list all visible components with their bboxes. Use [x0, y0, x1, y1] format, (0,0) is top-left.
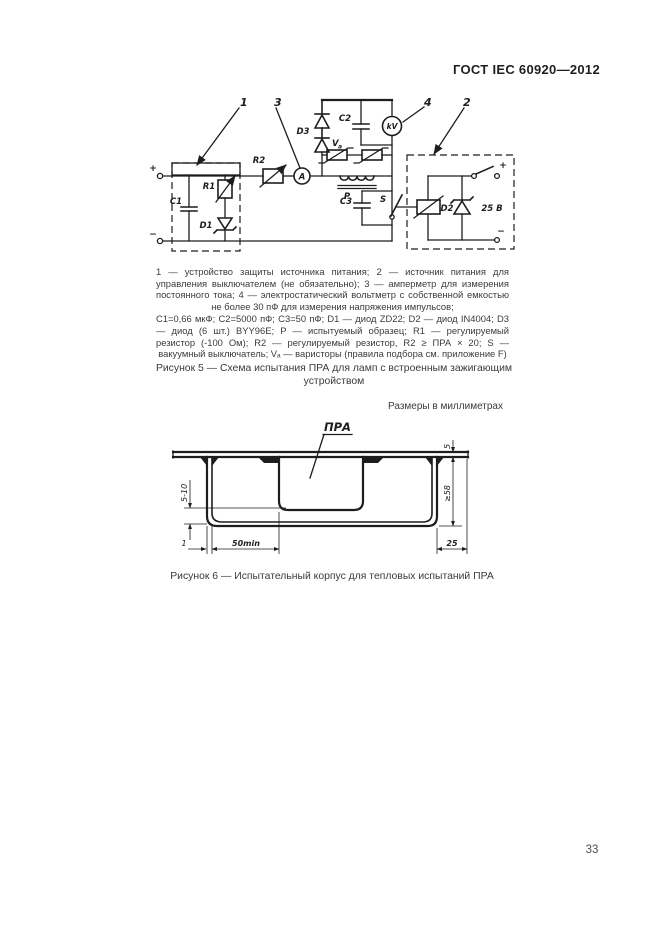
ballast-tab-right [363, 457, 384, 463]
callout-3: 3 [274, 96, 282, 109]
label-r2: R2 [253, 156, 266, 166]
callout-1-arrow [197, 108, 239, 165]
contact-blade [476, 167, 493, 175]
callout-3-line [276, 108, 300, 168]
tub-outer-wall [207, 457, 437, 526]
dim-edge: 25 [437, 459, 467, 554]
ballast-body [258, 457, 384, 510]
figure6-drawing: ПРА 5 [160, 418, 500, 568]
minus-sign-right: − [497, 227, 505, 237]
pra-part-label: ПРА [324, 420, 351, 434]
r2-and-ammeter: R2 A [253, 156, 310, 187]
label-d3: D3 [297, 127, 310, 137]
terminal-minus-right [495, 238, 500, 243]
label-kv: kV [387, 122, 399, 131]
block1-bar [172, 163, 240, 175]
ballast-outline [279, 457, 363, 510]
pulse-network: D3 C2 kV V a P [297, 100, 417, 241]
label-ammeter: A [298, 173, 306, 183]
diode-d2 [454, 201, 470, 214]
label-d1: D1 [200, 221, 213, 231]
diode-d3-upper [315, 115, 329, 128]
legend-components: C1=0,66 мкФ; C2=5000 пФ; C3=50 пФ; D1 — … [156, 313, 509, 359]
page-title: ГОСТ IEC 60920—2012 [0, 62, 600, 77]
dim-50min-text: 50min [232, 539, 260, 548]
terminal-plus-right [495, 174, 500, 179]
dim-plate-thickness: 5 [443, 440, 453, 452]
figure5-legend: 1 — устройство защиты источника питания;… [156, 266, 509, 361]
label-supply-voltage: 25 В [481, 204, 502, 214]
dim-wall: 1 [181, 526, 212, 554]
tub-inner-wall [212, 457, 432, 522]
dim-span: 50min [212, 512, 279, 554]
callout-2: 2 [463, 96, 471, 109]
label-r1: R1 [203, 182, 215, 192]
callout-1: 1 [240, 96, 248, 109]
units-note: Размеры в миллиметрах [303, 401, 503, 412]
figure5-caption: Рисунок 5 — Схема испытания ПРА для ламп… [148, 362, 520, 388]
mounting-plate [173, 451, 468, 458]
dim-1-text: 1 [181, 539, 186, 548]
dim-58-text: ≥58 [443, 485, 452, 502]
diode-d1 [218, 218, 232, 229]
callout-4-line [403, 107, 424, 122]
plus-sign-right: + [499, 161, 507, 171]
dim-gap-text: 5-10 [180, 484, 189, 502]
plus-sign-left: + [149, 164, 157, 174]
label-c1: C1 [170, 197, 182, 207]
label-va-sub: a [338, 144, 342, 151]
control-supply-block: D2 + − 25 В [407, 155, 514, 249]
terminal-plus-left [157, 173, 162, 178]
label-c3: C3 [340, 197, 352, 207]
figure6-caption: Рисунок 6 — Испытательный корпус для теп… [128, 570, 536, 583]
page-number: 33 [578, 844, 606, 856]
minus-sign-left: − [149, 230, 157, 240]
dim-25-text: 25 [446, 539, 458, 548]
label-d2: D2 [441, 204, 454, 214]
document-page: ГОСТ IEC 60920—2012 1 3 4 2 C1 R [0, 0, 661, 935]
label-c2: C2 [339, 114, 351, 124]
callout-2-arrow [434, 108, 464, 154]
dim-5-text: 5 [443, 444, 452, 449]
dim-gap: 5-10 [180, 480, 286, 540]
terminal-minus-left [157, 238, 162, 243]
label-s: S [380, 195, 386, 205]
legend-callouts: 1 — устройство защиты источника питания;… [156, 266, 509, 312]
dim-depth: ≥58 [439, 457, 462, 526]
ballast-tab-left [258, 457, 279, 463]
figure5-schematic: 1 3 4 2 C1 R1 D1 [140, 88, 520, 268]
enclosure-tub [200, 457, 444, 526]
